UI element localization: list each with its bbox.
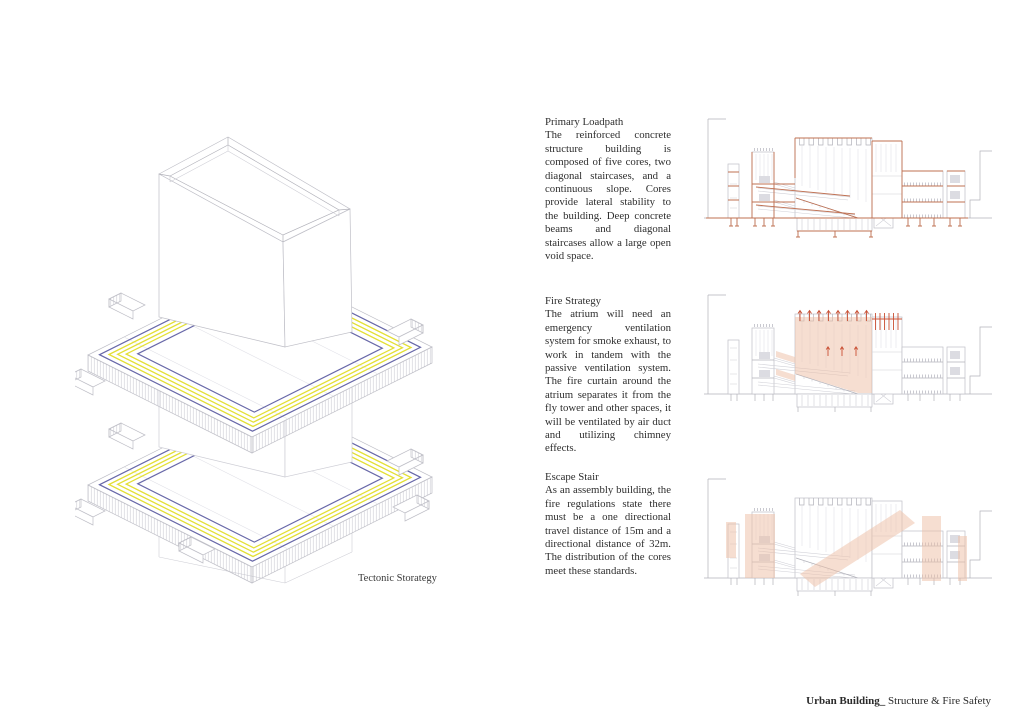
note-title: Escape Stair — [545, 471, 671, 484]
note-body: The atrium will need an emergency ventil… — [545, 308, 671, 455]
note-body: The reinforced concrete structure buildi… — [545, 129, 671, 263]
core-tower — [159, 137, 352, 347]
note-primary-loadpath: Primary Loadpath The reinforced concrete… — [545, 116, 671, 263]
axon-caption: Tectonic Storategy — [358, 573, 437, 584]
note-fire-strategy: Fire Strategy The atrium will need an em… — [545, 295, 671, 456]
board-footer: Urban Building_ Structure & Fire Safety — [806, 695, 991, 707]
note-body: As an assembly building, the fire regula… — [545, 484, 671, 578]
note-escape-stair: Escape Stair As an assembly building, th… — [545, 471, 671, 578]
tectonic-axonometric-drawing — [75, 125, 435, 585]
atrium-smoke-highlight — [776, 317, 872, 393]
section-drawing-primary-loadpath — [698, 114, 998, 249]
note-title: Fire Strategy — [545, 295, 671, 308]
board-subtitle: Structure & Fire Safety — [885, 695, 991, 707]
portfolio-board: Tectonic Storategy Primary Loadpath The … — [0, 0, 1024, 724]
section-drawing-escape-stair — [698, 474, 998, 609]
section-drawing-fire-strategy — [698, 290, 998, 425]
project-title: Urban Building_ — [806, 695, 885, 707]
note-title: Primary Loadpath — [545, 116, 671, 129]
